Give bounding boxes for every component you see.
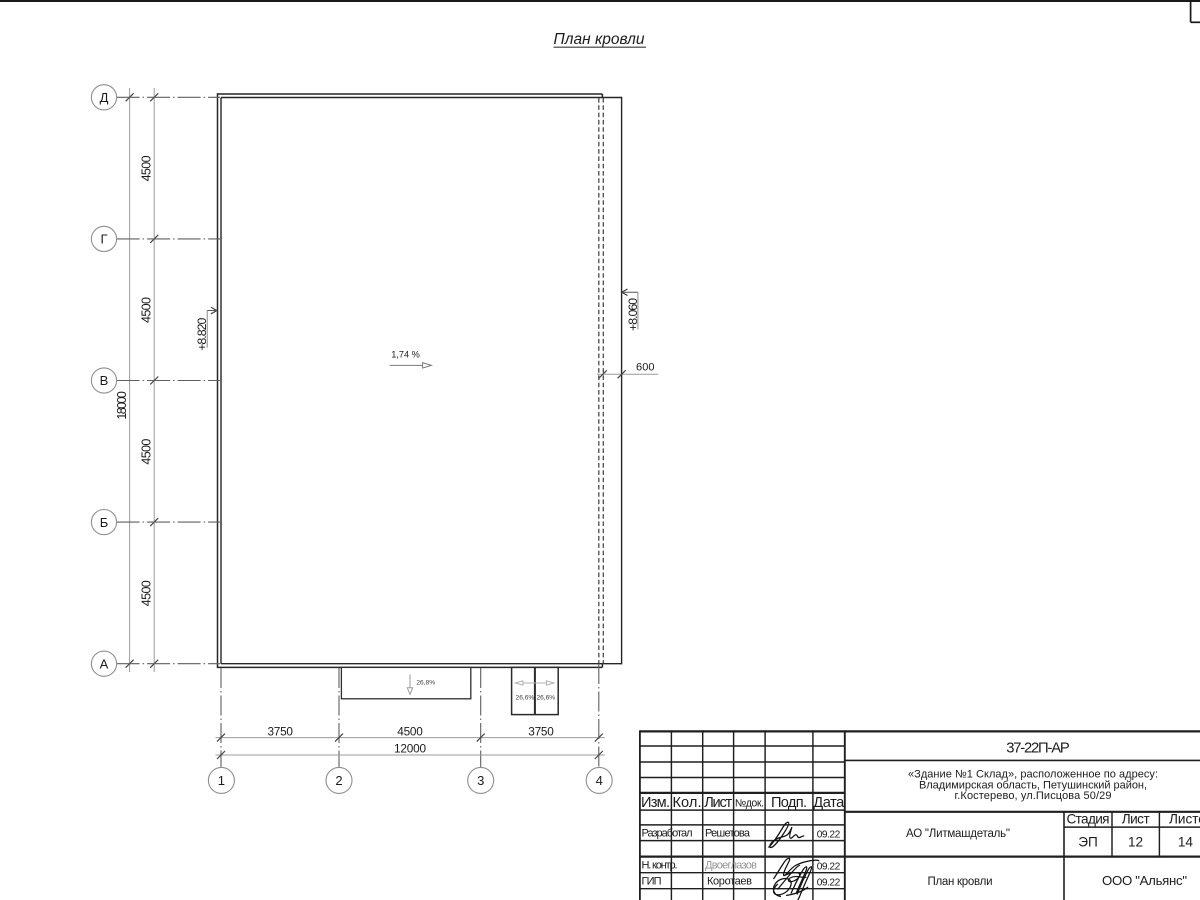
svg-text:План кровли: План кровли <box>554 31 645 48</box>
svg-text:Двоеглазов: Двоеглазов <box>705 860 757 872</box>
svg-text:600: 600 <box>636 361 655 373</box>
svg-text:ГИП: ГИП <box>642 876 662 888</box>
svg-text:Решетова: Решетова <box>705 828 751 840</box>
svg-text:Листов: Листов <box>1169 812 1200 827</box>
svg-text:Б: Б <box>100 515 109 530</box>
svg-text:ООО "Альянс": ООО "Альянс" <box>1102 873 1187 888</box>
svg-text:Дата: Дата <box>813 795 845 811</box>
svg-text:4500: 4500 <box>397 724 423 738</box>
svg-text:4500: 4500 <box>140 580 154 606</box>
svg-text:26,8%: 26,8% <box>416 680 435 687</box>
svg-text:3750: 3750 <box>528 724 554 738</box>
svg-text:План кровли: План кровли <box>928 876 993 888</box>
svg-text:+8.820: +8.820 <box>195 318 209 351</box>
svg-text:4500: 4500 <box>140 297 154 323</box>
svg-text:4: 4 <box>596 773 603 788</box>
svg-text:Н. контр.: Н. контр. <box>642 860 678 872</box>
svg-text:Подп.: Подп. <box>771 795 807 811</box>
svg-text:18000: 18000 <box>115 391 129 420</box>
svg-text:г.Костерево, ул.Писцова 50/29: г.Костерево, ул.Писцова 50/29 <box>955 790 1112 802</box>
svg-text:37-22П-АР: 37-22П-АР <box>1006 741 1070 757</box>
svg-text:Д: Д <box>100 90 109 105</box>
svg-text:12: 12 <box>1128 835 1143 850</box>
svg-text:В: В <box>100 373 109 388</box>
svg-text:Изм.: Изм. <box>641 795 670 811</box>
svg-text:09.22: 09.22 <box>817 861 841 872</box>
svg-text:ЭП: ЭП <box>1078 835 1098 850</box>
svg-text:Кол.: Кол. <box>673 795 702 811</box>
svg-text:14: 14 <box>1178 835 1194 850</box>
svg-text:Стадия: Стадия <box>1067 812 1110 827</box>
svg-text:4500: 4500 <box>140 439 154 465</box>
svg-text:Г: Г <box>100 232 107 247</box>
svg-text:АО "Литмашдеталь": АО "Литмашдеталь" <box>906 828 1010 840</box>
svg-text:Лист: Лист <box>704 795 732 811</box>
svg-text:09.22: 09.22 <box>817 877 841 888</box>
svg-text:Лист: Лист <box>1122 812 1150 827</box>
svg-text:4500: 4500 <box>140 155 154 181</box>
svg-text:1: 1 <box>218 773 225 788</box>
svg-text:№док.: №док. <box>735 798 764 810</box>
svg-text:Разработал: Разработал <box>642 828 693 840</box>
svg-text:+8.060: +8.060 <box>626 298 640 331</box>
svg-text:09.22: 09.22 <box>817 829 841 840</box>
svg-text:3750: 3750 <box>267 724 293 738</box>
svg-text:26,6%: 26,6% <box>536 694 555 701</box>
svg-text:3: 3 <box>477 773 484 788</box>
svg-text:Коротаев: Коротаев <box>707 876 752 888</box>
svg-text:2: 2 <box>335 773 342 788</box>
svg-text:1,74 %: 1,74 % <box>391 350 420 360</box>
svg-text:12000: 12000 <box>394 742 426 756</box>
svg-text:А: А <box>100 656 109 671</box>
svg-text:26,6%: 26,6% <box>516 694 535 701</box>
